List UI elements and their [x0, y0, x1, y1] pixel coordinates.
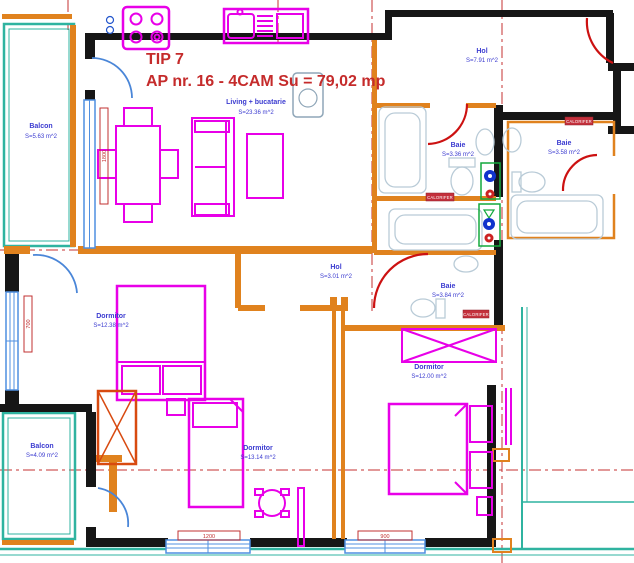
wall-segment	[235, 250, 241, 308]
bathtub-inner	[395, 215, 476, 244]
stove-burner	[152, 14, 163, 25]
dining-chair	[160, 150, 178, 178]
sink-faucet	[238, 10, 243, 15]
room-area: S=7.91 m^2	[466, 58, 499, 64]
wall-segment	[78, 246, 372, 254]
room-area: S=12.38 m^2	[93, 323, 129, 329]
room-area: S=13.14 m^2	[240, 455, 276, 461]
pillow	[163, 366, 201, 394]
chair-leg	[281, 489, 289, 495]
balcony-frame-inner	[8, 418, 70, 534]
stove-burner	[131, 14, 142, 25]
room-name: Baie	[441, 283, 456, 290]
utility-symbol	[107, 27, 114, 34]
toilet-tank	[436, 299, 445, 318]
bathtub-inner	[385, 113, 420, 187]
radiator-label: CALORIFER	[427, 195, 453, 200]
wall-segment	[606, 13, 614, 63]
wall-segment	[608, 126, 634, 134]
dimension-value: 900	[380, 534, 389, 540]
apartment-title: AP nr. 16 - 4CAM Su = 79,02 mp	[146, 73, 386, 90]
room-name: Hol	[330, 264, 341, 271]
floor-plan: 1800 700 1200 900 CALORIFER CALORIFER CA…	[0, 0, 634, 563]
radiator-label: CALORIFER	[463, 312, 489, 317]
pipe-center	[487, 222, 491, 226]
wall-segment	[372, 103, 377, 253]
wall-segment	[4, 246, 30, 254]
wall-segment	[613, 71, 621, 128]
room-area: S=12.00 m^2	[411, 374, 447, 380]
room-name: Hol	[476, 48, 487, 55]
room-name: Dormitor	[243, 445, 273, 452]
room-area: S=4.09 m^2	[26, 453, 59, 459]
pipe-center	[488, 237, 491, 240]
sink	[454, 256, 478, 272]
sink	[476, 129, 494, 155]
wall-segment	[374, 250, 496, 255]
boiler-drum	[299, 89, 317, 107]
wall-segment	[109, 462, 117, 512]
pipe-center	[488, 174, 492, 178]
wall-segment	[86, 412, 96, 487]
pipe-center	[489, 193, 492, 196]
shaft-triangle	[484, 210, 494, 218]
wall-segment	[608, 63, 634, 71]
wall-segment	[70, 25, 76, 247]
wall-segment	[494, 105, 503, 197]
sofa-arm	[195, 204, 229, 215]
wall-segment	[425, 538, 493, 547]
room-area: S=3.84 m^2	[432, 293, 465, 299]
wall-segment	[341, 311, 345, 539]
door-jamb	[341, 297, 348, 311]
dining-chair	[124, 108, 152, 126]
dining-chair	[124, 204, 152, 222]
dimension-value: 1200	[203, 534, 215, 540]
wall-segment	[85, 90, 95, 100]
toilet-bowl	[451, 167, 473, 195]
door-jamb	[330, 297, 337, 311]
bed-double	[389, 404, 467, 494]
wall-segment	[5, 250, 19, 292]
sink	[503, 128, 521, 152]
room-name: Balcon	[30, 443, 53, 450]
wall-segment	[2, 14, 72, 19]
room-area: S=3.01 m^2	[320, 274, 353, 280]
dining-table	[116, 126, 160, 204]
nightstand	[167, 399, 185, 415]
wall-segment	[238, 305, 265, 311]
wall-segment	[332, 311, 336, 539]
door-arc	[563, 155, 597, 191]
room-area: S=5.63 m^2	[25, 134, 58, 140]
coffee-table	[247, 134, 283, 198]
room-area: S=3.58 m^2	[548, 150, 581, 156]
wall-segment	[502, 112, 614, 120]
wall-segment	[372, 40, 377, 103]
kitchen-fixtures	[107, 7, 309, 49]
room-name: Dormitor	[96, 313, 126, 320]
plan-title: TIP 7 AP nr. 16 - 4CAM Su = 79,02 mp	[146, 51, 386, 90]
pillow	[193, 403, 237, 427]
dimension-value: 1800	[102, 150, 108, 162]
blanket-fold	[455, 482, 467, 494]
room-name: Balcon	[29, 123, 52, 130]
toilet-bowl	[411, 299, 435, 317]
desk	[298, 488, 304, 546]
room-name: Baie	[451, 142, 466, 149]
door-gap	[610, 156, 618, 194]
wall-segment	[385, 10, 613, 17]
floor-plan-drawing: 1800 700 1200 900 CALORIFER CALORIFER CA…	[0, 0, 634, 563]
chair-leg	[255, 511, 263, 517]
wall-segment	[86, 538, 168, 547]
exterior-walls	[0, 10, 634, 547]
plan-type-title: TIP 7	[146, 51, 184, 68]
utility-symbol	[107, 17, 114, 24]
bathtub-inner	[517, 201, 597, 233]
wall-segment	[300, 305, 344, 311]
radiator-label: CALORIFER	[566, 119, 592, 124]
room-area: S=3.36 m^2	[442, 152, 475, 158]
balcony-frame	[3, 413, 75, 539]
room-name: Baie	[557, 140, 572, 147]
room-name: Dormitor	[414, 364, 444, 371]
chair-leg	[281, 511, 289, 517]
dimension-value: 700	[26, 319, 32, 328]
dimension-markers: 1800 700 1200 900	[24, 108, 412, 540]
door-arc	[33, 255, 77, 293]
door-arc	[428, 104, 467, 144]
stove	[123, 7, 169, 49]
blanket-fold	[455, 404, 467, 416]
wall-segment	[0, 404, 92, 412]
wall-segment	[466, 103, 496, 108]
bed-single	[189, 399, 243, 507]
toilet-tank	[449, 158, 475, 167]
door-arc	[92, 58, 132, 98]
wall-segment	[85, 33, 95, 59]
sofa-arm	[195, 121, 229, 132]
toilet-bowl	[519, 172, 545, 192]
wall-segment	[2, 540, 74, 545]
chair-leg	[255, 489, 263, 495]
room-name: Living + bucatarie	[226, 99, 286, 106]
room-area: S=23.36 m^2	[238, 110, 274, 116]
